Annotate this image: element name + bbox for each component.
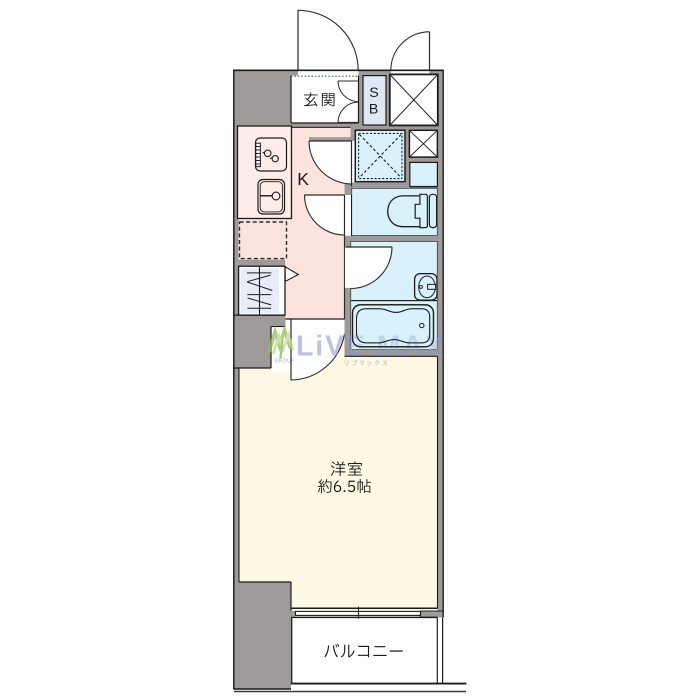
svg-text:B: B bbox=[369, 102, 378, 118]
svg-text:GROUP: GROUP bbox=[275, 359, 296, 365]
svg-text:K: K bbox=[297, 169, 309, 189]
svg-text:S: S bbox=[369, 85, 378, 101]
